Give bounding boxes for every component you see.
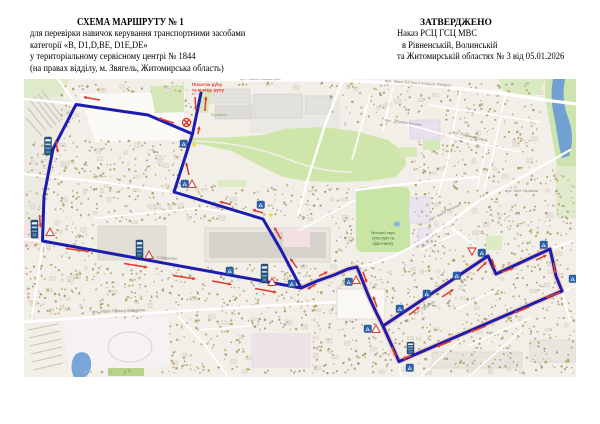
svg-text:культури та: культури та bbox=[372, 236, 395, 241]
svg-text:вул. Івана Мамайчука: вул. Івана Мамайчука bbox=[240, 79, 281, 81]
svg-text:Початок руху: Початок руху bbox=[192, 82, 223, 87]
svg-text:ТЦ Мóлл: ТЦ Мóлл bbox=[210, 112, 227, 117]
svg-text:Міський парк: Міський парк bbox=[371, 230, 395, 235]
svg-text:відпочинку: відпочинку bbox=[373, 241, 395, 246]
svg-text:та кінець руху: та кінець руху bbox=[192, 88, 225, 93]
svg-text:вул. Лесі Українки: вул. Лесі Українки bbox=[505, 188, 538, 193]
